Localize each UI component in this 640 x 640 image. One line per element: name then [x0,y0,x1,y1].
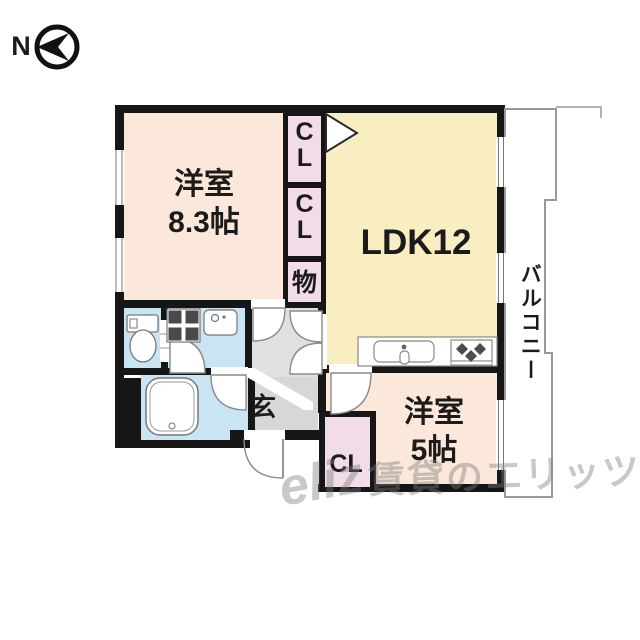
wall-wet-middle [115,368,250,375]
closet-middle-label: CL [288,192,321,243]
toilet-room-floor [124,308,161,368]
washroom-floor [168,308,245,368]
wall-hall-ldk-post-top [318,308,326,314]
wall-washroom-hall [245,308,252,377]
room-west-small-label: 洋室 5帖 [356,394,512,469]
north-compass-icon [37,27,77,67]
room-west-small-name: 洋室 [356,394,512,432]
wall-entrance-bottom [230,430,326,440]
wall-ldk-room2 [326,365,505,373]
wall-toilet-washroom [161,308,168,370]
floor-plan-page: N 洋室 8.3帖 LDK12 CL CL 物 バルコニー 玄 CL 洋室 5帖… [0,0,640,640]
ldk-label: LDK12 [336,221,496,265]
room-west-large-name: 洋室 [124,166,284,204]
wall-left-step-block [115,378,141,448]
room-west-large-size: 8.3帖 [124,204,284,242]
wall-left-upper [115,105,124,308]
wall-room2-left [318,373,326,413]
storage-label: 物 [288,268,321,299]
hall-floor [252,308,318,377]
room-west-small-size: 5帖 [356,432,512,470]
wall-under-room1 [115,300,290,308]
balcony-label: バルコニー [516,238,542,408]
room-west-large-label: 洋室 8.3帖 [124,166,284,241]
closet-upper-label: CL [288,120,321,171]
wall-bath-bottom [135,440,250,448]
north-label: N [8,30,34,64]
entrance-label: 玄 [247,391,279,424]
plan-linework [0,0,640,640]
